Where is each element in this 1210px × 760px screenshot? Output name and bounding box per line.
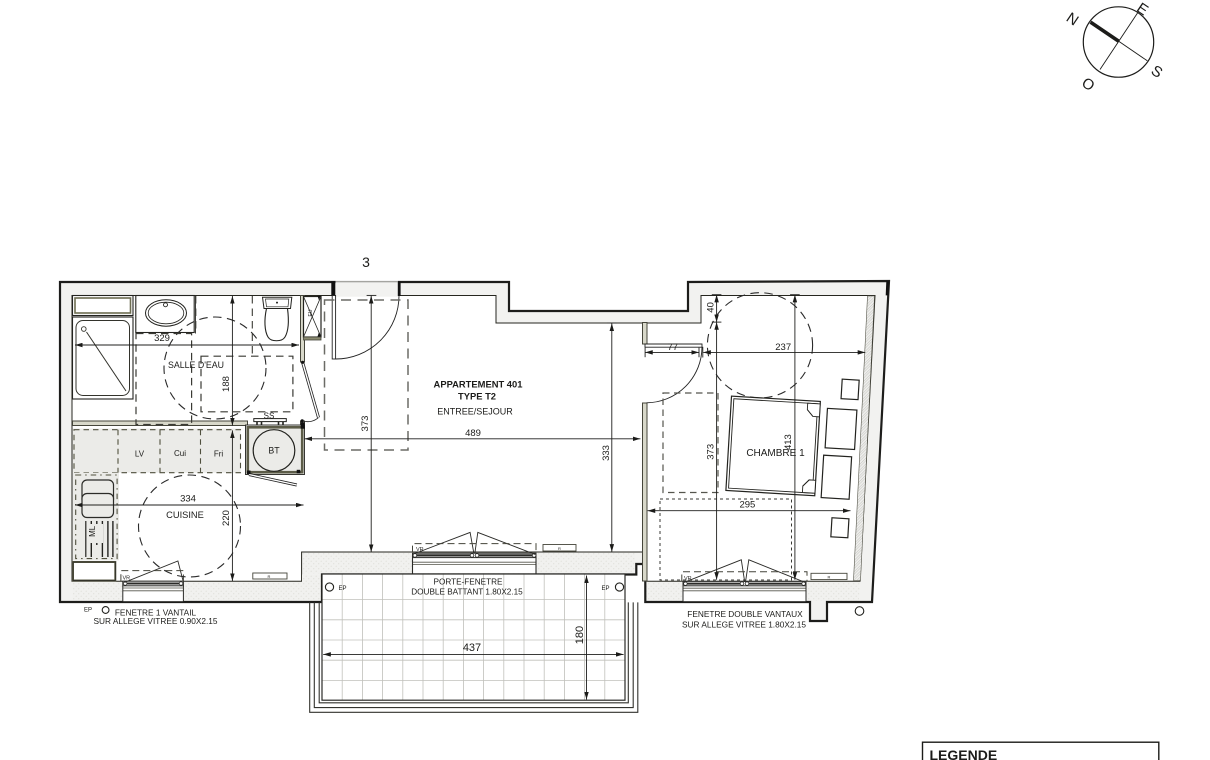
svg-text:40: 40 [706, 302, 717, 313]
svg-text:R: R [268, 574, 271, 579]
svg-text:EU: EU [308, 309, 314, 316]
svg-text:R: R [828, 575, 831, 580]
svg-text:S: S [1148, 62, 1166, 82]
svg-text:LEGENDE: LEGENDE [930, 747, 998, 760]
svg-text:373: 373 [360, 416, 371, 432]
svg-text:SUR ALLEGE VITREE 0.90X2.15: SUR ALLEGE VITREE 0.90X2.15 [93, 616, 217, 626]
svg-text:437: 437 [463, 642, 481, 654]
svg-text:VR: VR [416, 547, 424, 553]
svg-text:CUISINE: CUISINE [166, 510, 204, 520]
svg-text:SUR ALLEGE VITREE 1.80X2.15: SUR ALLEGE VITREE 1.80X2.15 [682, 620, 806, 630]
svg-text:EP: EP [339, 586, 347, 592]
svg-text:77: 77 [668, 342, 679, 353]
svg-text:VR: VR [123, 576, 131, 582]
svg-text:Fri: Fri [214, 450, 224, 459]
svg-text:LV: LV [135, 450, 145, 459]
svg-text:188: 188 [221, 376, 232, 392]
svg-text:FENETRE DOUBLE VANTAUX: FENETRE DOUBLE VANTAUX [687, 609, 803, 619]
svg-text:373: 373 [706, 444, 717, 460]
svg-text:Cui: Cui [174, 449, 186, 458]
svg-text:TYPE T2: TYPE T2 [458, 391, 496, 402]
svg-text:EP: EP [84, 608, 92, 614]
svg-text:R: R [558, 546, 561, 551]
svg-text:ML: ML [88, 525, 97, 537]
svg-text:295: 295 [739, 500, 755, 511]
svg-text:O: O [1078, 74, 1097, 95]
svg-text:CHAMBRE 1: CHAMBRE 1 [746, 448, 805, 459]
svg-text:N: N [1063, 9, 1081, 29]
svg-text:E: E [1133, 0, 1151, 19]
svg-text:489: 489 [465, 428, 481, 439]
svg-text:3: 3 [362, 254, 370, 270]
svg-text:SS: SS [264, 412, 275, 421]
svg-text:334: 334 [180, 494, 196, 505]
svg-text:SALLE D'EAU: SALLE D'EAU [168, 360, 224, 370]
svg-text:DOUBLE BATTANT 1.80X2.15: DOUBLE BATTANT 1.80X2.15 [411, 588, 523, 597]
svg-text:APPARTEMENT 401: APPARTEMENT 401 [434, 379, 523, 390]
svg-text:VR: VR [684, 576, 692, 582]
svg-text:220: 220 [221, 510, 232, 526]
svg-text:EP: EP [602, 586, 610, 592]
svg-text:180: 180 [574, 626, 586, 644]
svg-text:ENTREE/SEJOUR: ENTREE/SEJOUR [437, 407, 513, 417]
svg-text:BT: BT [268, 446, 280, 456]
svg-text:333: 333 [601, 445, 612, 461]
svg-text:237: 237 [775, 342, 791, 353]
svg-text:413: 413 [783, 434, 794, 450]
svg-text:PORTE-FENETRE: PORTE-FENETRE [434, 578, 504, 587]
svg-text:329: 329 [154, 333, 170, 344]
